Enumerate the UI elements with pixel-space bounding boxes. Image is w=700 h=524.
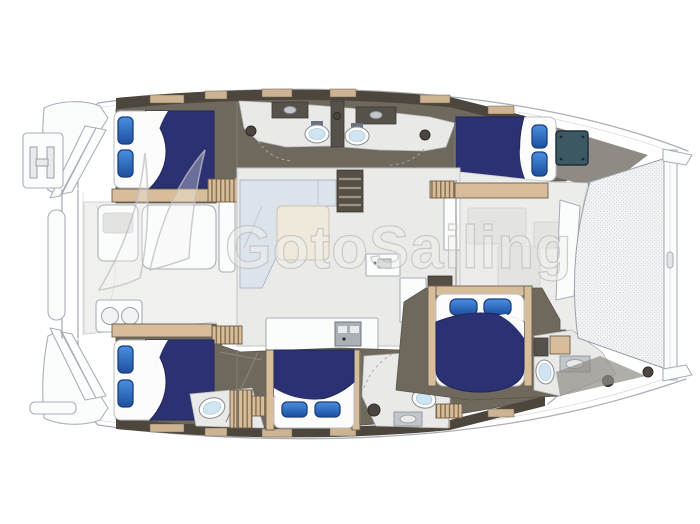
bed-pillow bbox=[282, 402, 307, 417]
shower-divider bbox=[331, 101, 344, 147]
bed-pillow bbox=[532, 152, 547, 176]
bed-pillow bbox=[118, 150, 133, 177]
bed-pillow bbox=[118, 346, 133, 373]
head-locker bbox=[550, 336, 570, 354]
locker-hatch bbox=[330, 89, 356, 97]
toilet-seat bbox=[309, 129, 325, 140]
catamaran-floorplan: GotoSailing bbox=[0, 0, 700, 524]
island-sink-unit bbox=[335, 322, 361, 346]
island-faucet bbox=[342, 337, 345, 340]
locker-hatch bbox=[205, 91, 227, 99]
bed-frame-left bbox=[428, 286, 436, 386]
island-sink-basin bbox=[338, 326, 347, 333]
bed-pillow bbox=[450, 299, 477, 315]
bed-blanket bbox=[456, 117, 526, 181]
trampoline-mesh bbox=[574, 158, 666, 369]
sink-basin bbox=[400, 415, 416, 423]
stern-step-rail bbox=[30, 402, 76, 414]
floorplan-canvas: GotoSailing bbox=[0, 0, 700, 524]
shower-mixer bbox=[334, 113, 341, 120]
locker-hatch bbox=[150, 424, 184, 432]
watermark-text: GotoSailing bbox=[225, 214, 573, 281]
shower-head bbox=[420, 130, 430, 140]
grill-burner-right bbox=[122, 308, 139, 325]
locker-hatch bbox=[488, 106, 514, 114]
locker-hatch bbox=[150, 95, 184, 103]
shower-head bbox=[368, 404, 380, 416]
bed-pillow bbox=[118, 380, 133, 407]
sink-right bbox=[370, 112, 382, 119]
grill-burner-left bbox=[102, 308, 119, 325]
hatch-screw bbox=[560, 158, 563, 161]
locker-hatch bbox=[488, 409, 514, 417]
sink-left bbox=[284, 107, 296, 114]
locker-hatch bbox=[262, 89, 292, 97]
lounge-storage-shelf bbox=[455, 183, 548, 198]
bed-pillow bbox=[484, 299, 511, 315]
locker-hatch bbox=[205, 428, 227, 436]
bed-blanket bbox=[436, 313, 524, 392]
shower-head bbox=[246, 126, 256, 136]
head-fixture bbox=[534, 338, 548, 356]
beam-cleat bbox=[667, 252, 673, 268]
hatch-screw bbox=[582, 136, 585, 139]
bed-frame-left bbox=[266, 350, 274, 430]
bed-pillow bbox=[315, 402, 340, 417]
anchor-fitting bbox=[643, 367, 653, 377]
companionway-rungs bbox=[436, 404, 462, 418]
bed-pillow bbox=[118, 117, 133, 144]
cabin-shelf bbox=[112, 324, 212, 337]
locker-hatch bbox=[420, 95, 450, 103]
ladder-crossbar bbox=[36, 159, 48, 166]
companionway-stairs-top bbox=[337, 170, 363, 212]
companionway-rungs bbox=[212, 326, 242, 344]
davit-bar bbox=[48, 210, 65, 320]
hatch-screw bbox=[582, 158, 585, 161]
bed-pillow bbox=[532, 125, 547, 148]
island-sink-basin bbox=[350, 326, 359, 333]
lounge-rungs bbox=[430, 181, 454, 198]
bed-frame-right bbox=[524, 286, 532, 386]
companionway-rungs bbox=[230, 390, 252, 428]
hatch-screw bbox=[560, 136, 563, 139]
toilet-seat bbox=[349, 131, 365, 142]
